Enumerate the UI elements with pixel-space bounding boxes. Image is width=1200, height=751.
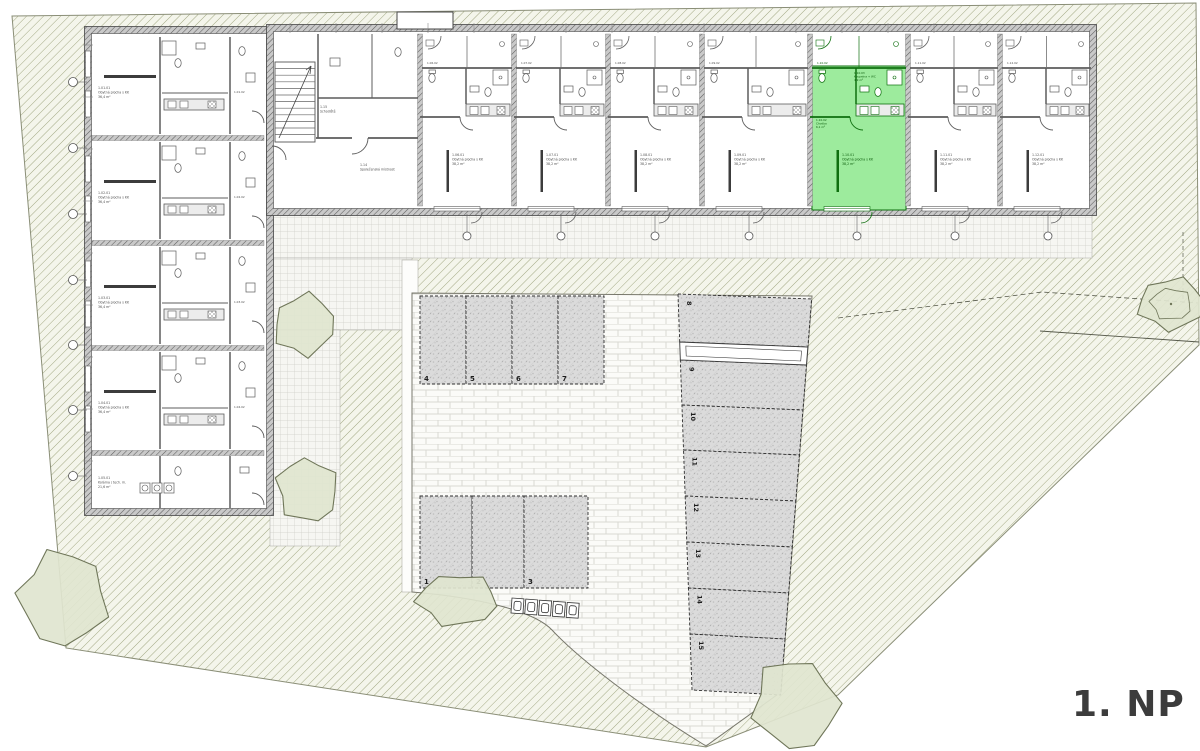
unit-1.12: 1.12.01Obytná plocha s KK38,2 m²1.12.02 [1000,36,1091,223]
unit-1.03-hit[interactable] [94,247,262,345]
core-label-line: 1.15 [320,105,327,109]
unit-1.09-hit[interactable] [705,36,807,208]
core-label-line: Schodiště [320,110,336,114]
grid-bubble [69,276,78,285]
west-window [86,51,91,77]
unit-1.03: 1.03.01Obytná plocha s KK36,4 m²1.03.02 [86,247,265,345]
parking-space-number: 8 [685,301,693,306]
parking-space-number-group: 10 [689,412,697,422]
bin-stand [552,601,565,617]
floor-plan-canvas: 456712389101112131415 1.06.01Obytná ploc… [0,0,1200,751]
unit-1.11-hit[interactable] [911,36,997,208]
party-wall [512,34,517,206]
parking-space[interactable] [524,496,588,588]
grid-bubble [69,341,78,350]
parking-space-number: 10 [689,412,697,422]
party-wall [92,346,264,351]
parking-space-number: 4 [424,375,429,383]
party-wall [92,241,264,246]
parking-space[interactable] [678,294,812,347]
core-label-line: Společenská místnost [360,168,396,172]
party-wall [606,34,611,206]
parking-space-number-group: 14 [695,595,703,605]
bin-stand [525,599,538,615]
party-wall [92,451,264,456]
parking-space[interactable] [680,360,806,410]
unit-1.07-hit[interactable] [517,36,605,208]
terrace-grid-bubble [745,232,753,240]
unit-1.12-hit[interactable] [1003,36,1090,208]
unit-1.08: 1.08.01Obytná plocha s KK38,2 m²1.08.02 [608,36,700,223]
unit-1.10: 1.10.01Obytná plocha s KK38,2 m²1.10.02 [810,36,906,223]
terrace-grid-bubble [463,232,471,240]
parking-space-number: 13 [694,549,702,558]
bin-outline [539,600,552,616]
core-label-line: 1.14 [360,163,367,167]
parking-space-number: 14 [695,595,703,605]
parking-space-number-group: 11 [691,457,699,467]
unit-1.01-hit[interactable] [94,37,262,135]
party-wall [418,34,423,206]
west-window [86,366,91,392]
parking-space-number: 9 [687,367,695,372]
parking-space-number: 5 [470,375,475,383]
parking-space-number: 7 [562,375,567,383]
terrace-grid-bubble [651,232,659,240]
unit-1.10-hit[interactable] [813,36,905,208]
grid-bubble [69,472,78,481]
grid-bubble [69,210,78,219]
unit-1.08-hit[interactable] [611,36,699,208]
toilet-fixture [395,48,401,57]
terrace-grid-bubble [853,232,861,240]
parking-space-number-group: 8 [685,301,693,306]
bin-outline [566,602,579,618]
unit-1.04-hit[interactable] [94,352,262,450]
party-wall [700,34,705,206]
bin-stand [566,602,579,618]
unit-bath-label-line: 4,9 m² [854,78,863,82]
bin-outline [511,598,524,614]
unit-1.01: 1.01.01Obytná plocha s KK36,4 m²1.01.02 [86,37,265,135]
bin-outline [525,599,538,615]
entrance-canopy [397,12,453,29]
unit-1.06: 1.06.01Obytná plocha s KK38,2 m²1.06.02 [420,36,512,223]
parking-space-number: 1 [424,578,429,586]
fixture [330,58,340,66]
unit-1.07: 1.07.01Obytná plocha s KK38,2 m²1.07.02 [514,36,606,223]
unit-1.05-hit[interactable] [94,456,262,510]
parking-space[interactable] [685,496,796,547]
unit-1.06-hit[interactable] [423,36,511,208]
terrace-grid-bubble [557,232,565,240]
party-wall [808,34,813,206]
party-wall [998,34,1003,206]
bin-stand [511,598,524,614]
parking-space-number-group: 13 [694,549,702,558]
parking-space-number-group: 12 [692,503,700,512]
parking-space[interactable] [558,296,604,384]
parking-space[interactable] [512,296,558,384]
parking-space-number-group: 15 [697,641,705,651]
west-window [86,261,91,287]
floor-level-label: 1. NP [1072,684,1185,725]
parking-space-number: 12 [692,503,700,512]
parking-space[interactable] [420,296,466,384]
parking-space-number: 11 [691,457,699,467]
bin-outline [552,601,565,617]
terrace-tiles [270,212,1092,258]
unit-1.04: 1.04.01Obytná plocha s KK36,4 m²1.04.02 [86,352,265,450]
unit-1.02-hit[interactable] [94,142,262,240]
unit-1.09: 1.09.01Obytná plocha s KK38,2 m²1.09.02 [702,36,808,223]
parking-space[interactable] [684,450,800,501]
parking-space-number: 3 [528,578,533,586]
west-window [86,156,91,182]
west-window [86,91,91,117]
unit-1.02: 1.02.01Obytná plocha s KK36,4 m²1.02.02 [86,142,265,240]
party-wall [92,136,264,141]
party-wall [906,34,911,206]
tree-trunk-dot [1170,303,1172,305]
parking-space[interactable] [420,496,472,588]
unit-1.11: 1.11.01Obytná plocha s KK38,2 m²1.11.02 [908,36,998,223]
parking-space-number: 6 [516,375,521,383]
parking-space-number: 15 [697,641,705,651]
grid-bubble [69,144,78,153]
floor-plan-svg: 456712389101112131415 1.06.01Obytná ploc… [0,0,1200,751]
parking-space[interactable] [682,405,803,455]
parking-space[interactable] [466,296,512,384]
bin-stand [539,600,552,616]
grid-bubble [69,406,78,415]
parking-space-number-group: 9 [687,367,695,372]
terrace-grid-bubble [1044,232,1052,240]
grid-bubble [69,78,78,87]
parking-space[interactable] [472,496,524,588]
terrace-grid-bubble [951,232,959,240]
unit-hall-label-line: 6,1 m² [816,125,825,129]
unit-1.05: 1.05.01Kolárna / tech. m.21,6 m² [94,456,264,510]
west-window [86,196,91,222]
